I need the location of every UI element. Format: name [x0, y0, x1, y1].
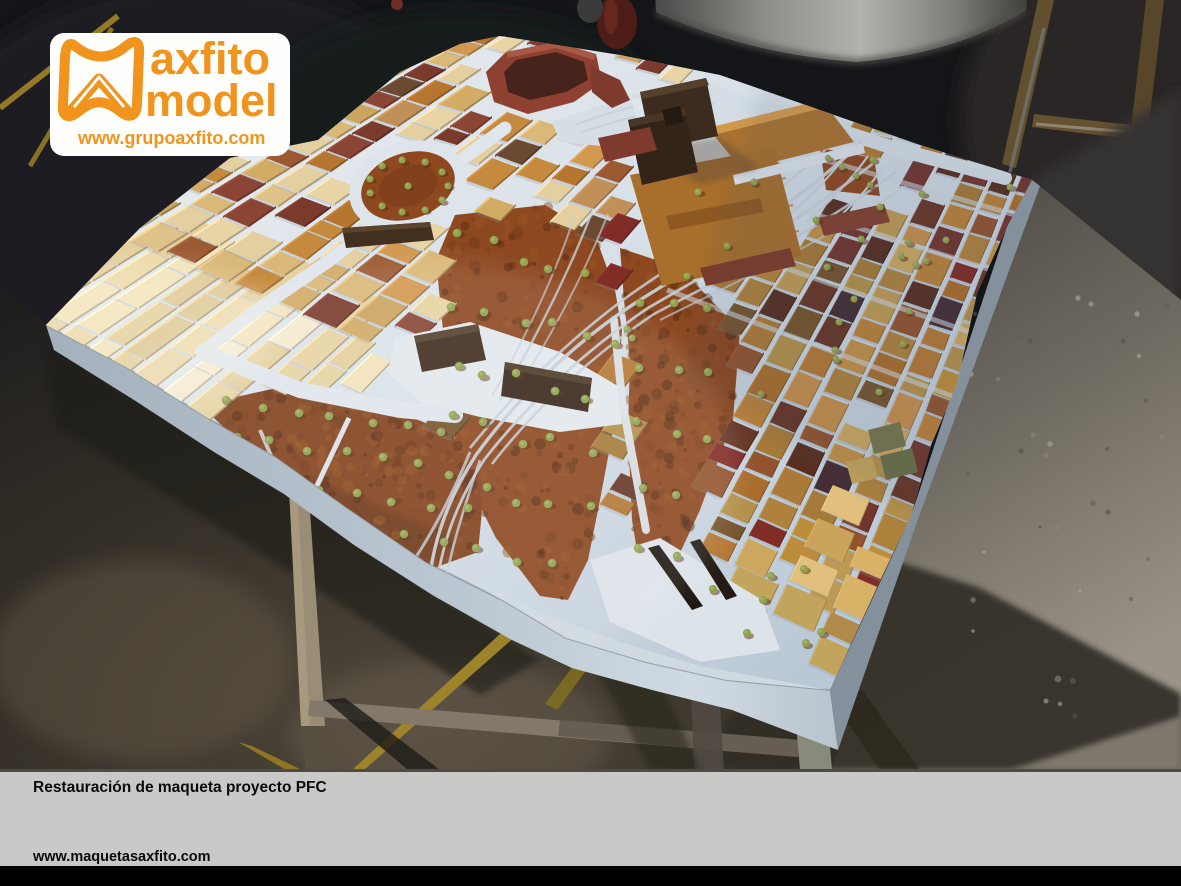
svg-text:model: model — [145, 75, 278, 126]
svg-text:www.maquetasaxfito.com: www.maquetasaxfito.com — [32, 849, 211, 865]
svg-text:www.grupoaxfito.com: www.grupoaxfito.com — [77, 128, 265, 148]
svg-text:Restauración de maqueta proyec: Restauración de maqueta proyecto PFC — [33, 779, 327, 796]
